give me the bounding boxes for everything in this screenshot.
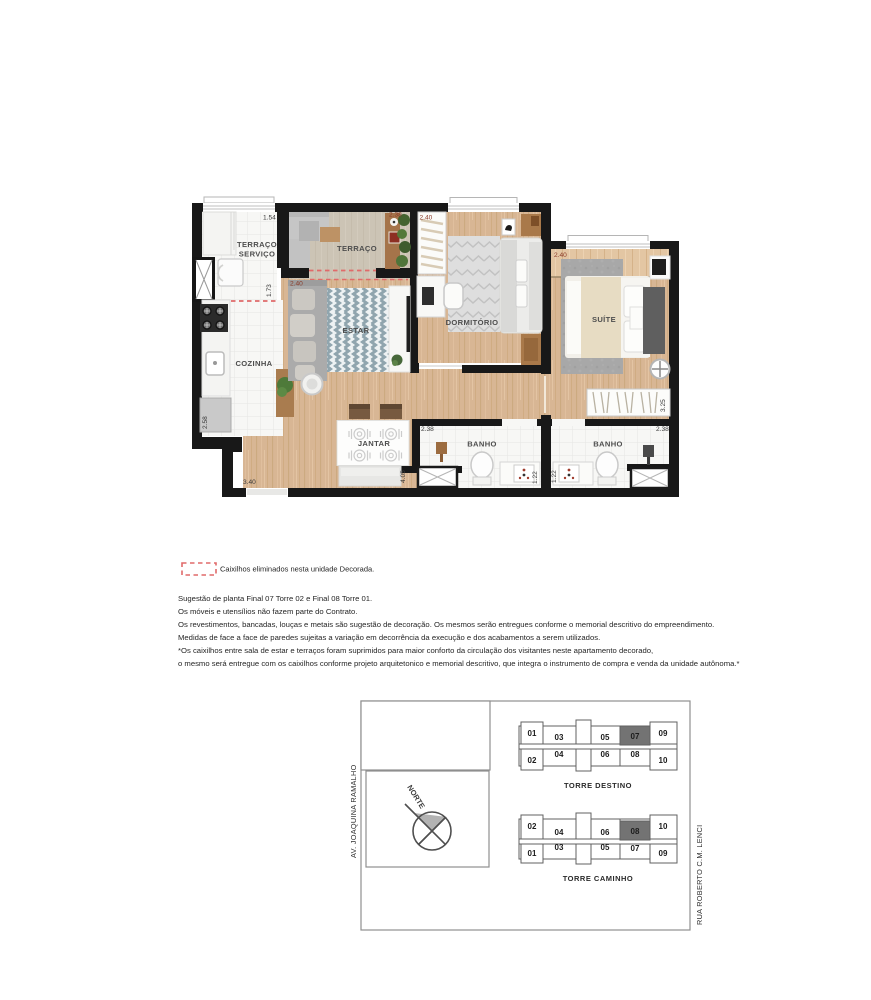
svg-text:ESTAR: ESTAR [343,326,370,335]
svg-text:TERRAÇO: TERRAÇO [237,240,277,249]
svg-text:01: 01 [528,849,537,858]
svg-text:DORMITÓRIO: DORMITÓRIO [446,318,499,327]
svg-text:TERRAÇO: TERRAÇO [337,244,377,253]
svg-text:08: 08 [631,827,640,836]
svg-text:02: 02 [528,756,537,765]
svg-text:03: 03 [555,733,564,742]
svg-text:Os revestimentos, bancadas, lo: Os revestimentos, bancadas, louças e met… [178,620,714,629]
svg-text:Os móveis e utensílios não faz: Os móveis e utensílios não fazem parte d… [178,607,357,616]
svg-text:COZINHA: COZINHA [235,359,272,368]
svg-text:1.73: 1.73 [266,284,273,297]
svg-text:3.25: 3.25 [660,399,667,412]
svg-text:09: 09 [659,729,668,738]
svg-text:04: 04 [555,828,564,837]
svg-text:10: 10 [659,756,668,765]
svg-text:09: 09 [659,849,668,858]
svg-text:3.40: 3.40 [243,479,256,486]
svg-text:05: 05 [601,733,610,742]
svg-text:TORRE CAMINHO: TORRE CAMINHO [563,874,634,883]
svg-text:TORRE DESTINO: TORRE DESTINO [564,781,632,790]
svg-text:BANHO: BANHO [467,440,497,449]
svg-text:06: 06 [601,750,610,759]
svg-text:SUÍTE: SUÍTE [592,315,616,324]
svg-text:2.58: 2.58 [202,416,209,429]
svg-text:06: 06 [601,828,610,837]
svg-text:1.54: 1.54 [263,215,276,222]
svg-text:SERVIÇO: SERVIÇO [239,250,276,259]
svg-text:2.38: 2.38 [656,426,669,433]
svg-text:Medidas de face a face de pare: Medidas de face a face de paredes sujeit… [178,633,600,642]
svg-text:2.40: 2.40 [420,215,433,222]
svg-text:*Os caixilhos entre sala de es: *Os caixilhos entre sala de estar e terr… [178,646,653,655]
svg-text:Caixilhos eliminados nesta uni: Caixilhos eliminados nesta unidade Decor… [220,565,374,574]
svg-text:BANHO: BANHO [593,440,623,449]
svg-text:01: 01 [528,729,537,738]
svg-text:4.05: 4.05 [400,470,407,483]
svg-text:o mesmo será entregue com os c: o mesmo será entregue com os caixilhos c… [178,659,740,668]
svg-text:05: 05 [601,843,610,852]
svg-text:10: 10 [659,822,668,831]
svg-text:02: 02 [528,822,537,831]
svg-text:03: 03 [555,843,564,852]
svg-text:2.40: 2.40 [554,252,567,259]
svg-text:2.38: 2.38 [389,212,402,219]
svg-text:1.22: 1.22 [551,470,558,483]
svg-text:JANTAR: JANTAR [358,439,390,448]
svg-text:04: 04 [555,750,564,759]
svg-text:1.22: 1.22 [532,471,539,484]
svg-text:Sugestão de planta Final 07 To: Sugestão de planta Final 07 Torre 02 e F… [178,594,372,603]
svg-text:RUA ROBERTO C.M. LENCI: RUA ROBERTO C.M. LENCI [695,825,704,925]
svg-text:08: 08 [631,750,640,759]
svg-text:AV. JOAQUINA RAMALHO: AV. JOAQUINA RAMALHO [349,764,358,858]
svg-text:2.40: 2.40 [290,281,303,288]
svg-text:2.38: 2.38 [421,426,434,433]
svg-text:07: 07 [631,732,640,741]
svg-text:07: 07 [631,844,640,853]
